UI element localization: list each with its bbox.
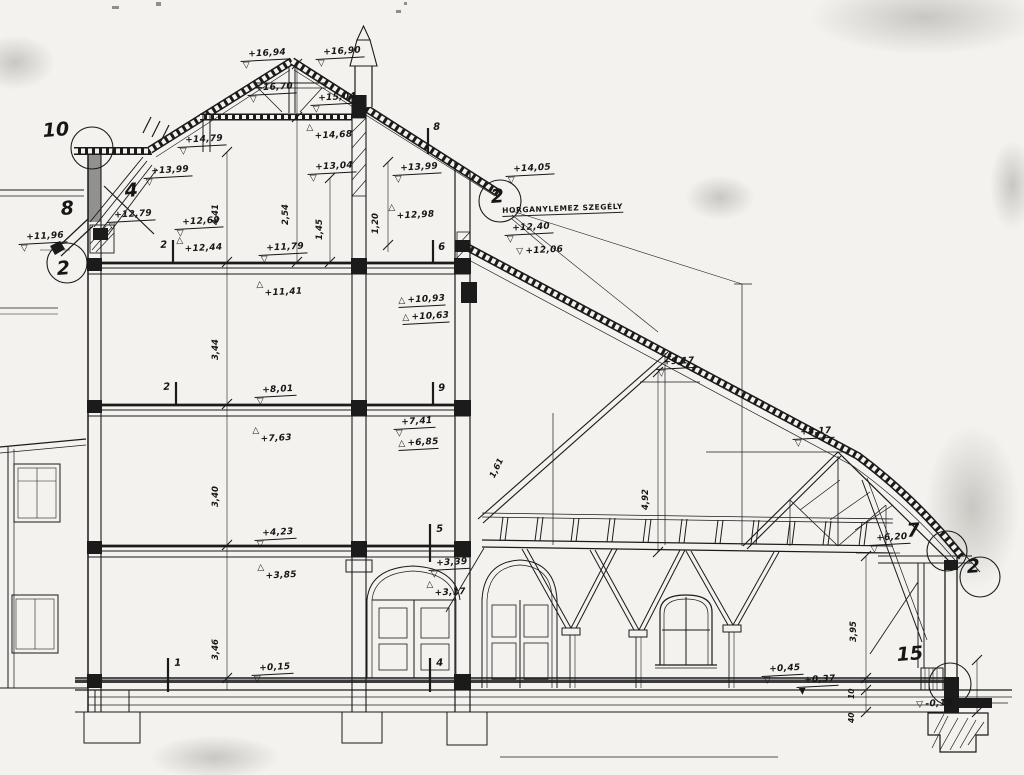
elevation-marker: △+3,85 (257, 562, 297, 582)
elevation-marker: +0,15▽ (251, 662, 294, 684)
level-triangle-icon: ▽ (916, 700, 924, 710)
level-triangle-icon: ▽ (658, 368, 699, 378)
elevation-marker: △+10,63 (402, 311, 450, 325)
elevation-marker: +12,79▽ (106, 208, 156, 231)
section-tick-label: 8 (433, 122, 441, 133)
elevation-marker: +4,23▽ (254, 527, 297, 549)
elevation-marker: +14,05▽ (505, 162, 555, 185)
elevation-marker: △+12,98 (388, 202, 435, 222)
dimension-label: 4,92 (641, 489, 651, 510)
detail-number-label: 2 (490, 185, 505, 208)
level-triangle-icon: ▼ (799, 686, 840, 696)
level-triangle-icon: ▽ (313, 103, 360, 113)
dimension-label: 3,44 (211, 339, 221, 360)
detail-number-label: 2 (966, 555, 981, 578)
level-triangle-icon: ▽ (261, 253, 308, 263)
level-triangle-icon: ▽ (257, 539, 298, 549)
dimension-label: 3,46 (211, 639, 221, 660)
level-triangle-icon: △ (398, 439, 406, 449)
level-triangle-icon: ▽ (508, 174, 555, 184)
elevation-marker: △+11,41 (256, 279, 303, 299)
section-tick-label: 4 (436, 658, 444, 669)
annotation-layer: +16,94▽+16,90▽+16,70▽+15,04▽△+14,68+13,0… (0, 0, 1024, 775)
level-triangle-icon: △ (402, 313, 410, 323)
level-triangle-icon: ▽ (318, 57, 365, 67)
elevation-marker: +13,99▽ (143, 164, 193, 187)
elevation-marker: +13,99▽ (392, 161, 442, 184)
section-tick-label: 2 (163, 382, 171, 393)
elevation-marker: +0,37▼ (796, 674, 839, 696)
elevation-marker: +8,01▽ (254, 384, 297, 406)
dimension-label: 10 (847, 689, 856, 699)
elevation-marker: △+3,17 (426, 579, 466, 599)
dimension-label: 2,54 (281, 204, 291, 225)
elevation-marker: +14,79▽ (177, 133, 227, 156)
section-drawing-canvas: +16,94▽+16,90▽+16,70▽+15,04▽△+14,68+13,0… (0, 0, 1024, 775)
level-triangle-icon: ▽ (109, 220, 156, 230)
elevation-marker: △+6,85 (398, 437, 439, 451)
elevation-marker: +16,70▽ (247, 81, 297, 104)
dimension-label: 1,20 (371, 213, 381, 234)
detail-number-label: 2 (56, 257, 71, 280)
elevation-marker: +8,17▽ (792, 426, 835, 448)
elevation-marker: +6,20▽ (868, 532, 911, 554)
section-tick-label: 5 (436, 524, 444, 535)
elevation-marker: △+7,63 (252, 425, 292, 445)
elevation-marker: △+10,93 (398, 294, 446, 308)
elevation-marker: +16,94▽ (240, 47, 290, 70)
elevation-marker: +3,39▽ (428, 557, 471, 579)
detail-number-label: 15 (896, 642, 924, 666)
dimension-label: 1,45 (315, 219, 325, 240)
level-triangle-icon: ▽ (516, 247, 524, 257)
dimension-label: 4,41 (211, 204, 221, 225)
elevation-marker: +9,17▽ (655, 356, 698, 378)
dimension-label: 3,95 (849, 621, 859, 642)
section-tick-label: 1 (174, 658, 182, 669)
detail-number-label: 4 (124, 179, 139, 202)
level-triangle-icon: ▽ (431, 569, 472, 579)
level-triangle-icon: ▽ (507, 233, 554, 243)
elevation-marker: +7,41▽ (393, 416, 436, 438)
level-triangle-icon: ▽ (243, 59, 290, 69)
level-triangle-icon: ▽ (254, 674, 295, 684)
elevation-marker: ▽-0,10 (916, 698, 953, 710)
elevation-marker: +13,04▽ (307, 160, 357, 183)
level-triangle-icon: ▽ (310, 172, 357, 182)
level-triangle-icon: ▽ (250, 93, 297, 103)
section-tick-label: 6 (438, 242, 446, 253)
dimension-label: 1,61 (488, 457, 506, 480)
elevation-marker: +11,79▽ (258, 241, 308, 264)
elevation-marker: △+12,44 (176, 235, 223, 255)
detail-number-label: 10 (42, 118, 70, 142)
material-note: HORGANYLEMEZ SZEGÉLY (502, 202, 623, 217)
elevation-marker: △+14,68 (306, 122, 353, 142)
elevation-marker: ▽+12,06 (516, 245, 564, 257)
elevation-marker: +15,04▽ (310, 91, 360, 114)
level-triangle-icon: ▽ (21, 242, 68, 252)
section-tick-label: 2 (160, 240, 168, 251)
level-triangle-icon: ▽ (257, 396, 298, 406)
detail-number-label: 7 (906, 519, 921, 542)
elevation-marker: +11,96▽ (18, 230, 68, 253)
elevation-marker: +16,90▽ (315, 45, 365, 68)
dimension-label: 3,40 (211, 486, 221, 507)
level-triangle-icon: ▽ (146, 176, 193, 186)
level-triangle-icon: △ (398, 296, 406, 306)
section-tick-label: 9 (438, 383, 446, 394)
dimension-label: 40 (847, 713, 856, 723)
level-triangle-icon: ▽ (180, 145, 227, 155)
elevation-marker: +12,40▽ (504, 221, 554, 244)
detail-number-label: 8 (60, 197, 75, 220)
level-triangle-icon: ▽ (795, 438, 836, 448)
level-triangle-icon: ▽ (395, 173, 442, 183)
level-triangle-icon: ▽ (871, 544, 912, 554)
